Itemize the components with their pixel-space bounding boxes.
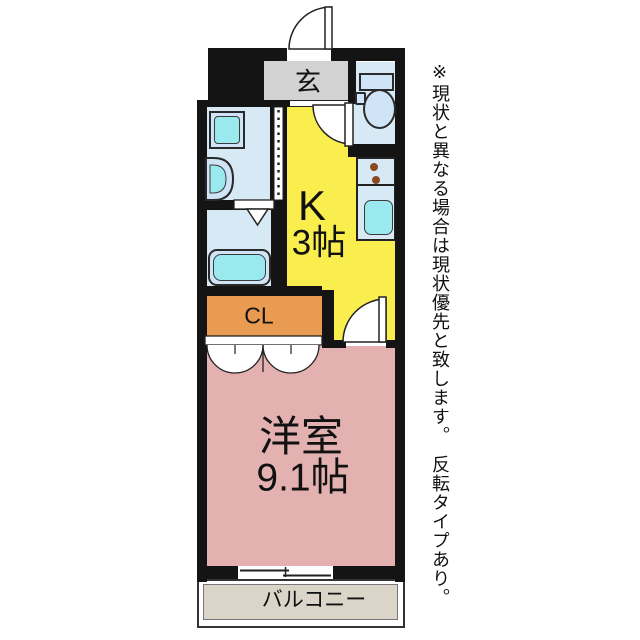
wall bbox=[348, 144, 405, 157]
genkan-label: 玄 bbox=[295, 69, 321, 95]
folding-door-icon bbox=[274, 107, 283, 200]
wall bbox=[197, 100, 207, 582]
washing-machine-tub bbox=[214, 116, 240, 144]
bathtub-inner bbox=[213, 254, 266, 281]
wall bbox=[322, 340, 346, 348]
wall bbox=[331, 48, 405, 61]
wall bbox=[386, 340, 405, 348]
western-room-label: 洋室 bbox=[259, 416, 343, 458]
wall bbox=[197, 200, 273, 210]
wall bbox=[271, 200, 287, 296]
wall bbox=[197, 100, 290, 107]
kitchen-label: K bbox=[298, 185, 326, 227]
balcony-label: バルコニー bbox=[262, 590, 367, 611]
kitchen-sink-icon bbox=[364, 200, 393, 235]
toilet-bowl-icon bbox=[363, 89, 396, 129]
genkan-step bbox=[287, 100, 348, 107]
wall bbox=[197, 286, 322, 296]
wall bbox=[270, 107, 274, 201]
kitchen-counter bbox=[356, 157, 396, 241]
wall bbox=[283, 107, 287, 201]
floor-plan: 玄 K 3帖 CL 洋室 9.1帖 バルコニー ※現状と異なる場合は現状優先と致… bbox=[0, 0, 640, 640]
entrance-opening bbox=[287, 48, 331, 61]
wall bbox=[208, 48, 287, 61]
disclaimer-note: ※現状と異なる場合は現状優先と致します。 反転タイプあり。 bbox=[428, 62, 452, 607]
window-opening bbox=[238, 566, 333, 579]
entrance-door-swing-icon bbox=[289, 7, 332, 49]
wall bbox=[322, 290, 334, 340]
closet-label: CL bbox=[244, 305, 273, 328]
counter-divider bbox=[358, 184, 394, 186]
kitchen-size-label: 3帖 bbox=[292, 226, 346, 261]
stove-burner-icon bbox=[372, 176, 380, 184]
wall bbox=[395, 48, 405, 582]
western-room-size-label: 9.1帖 bbox=[256, 459, 349, 498]
stove-burner-icon bbox=[370, 163, 378, 171]
